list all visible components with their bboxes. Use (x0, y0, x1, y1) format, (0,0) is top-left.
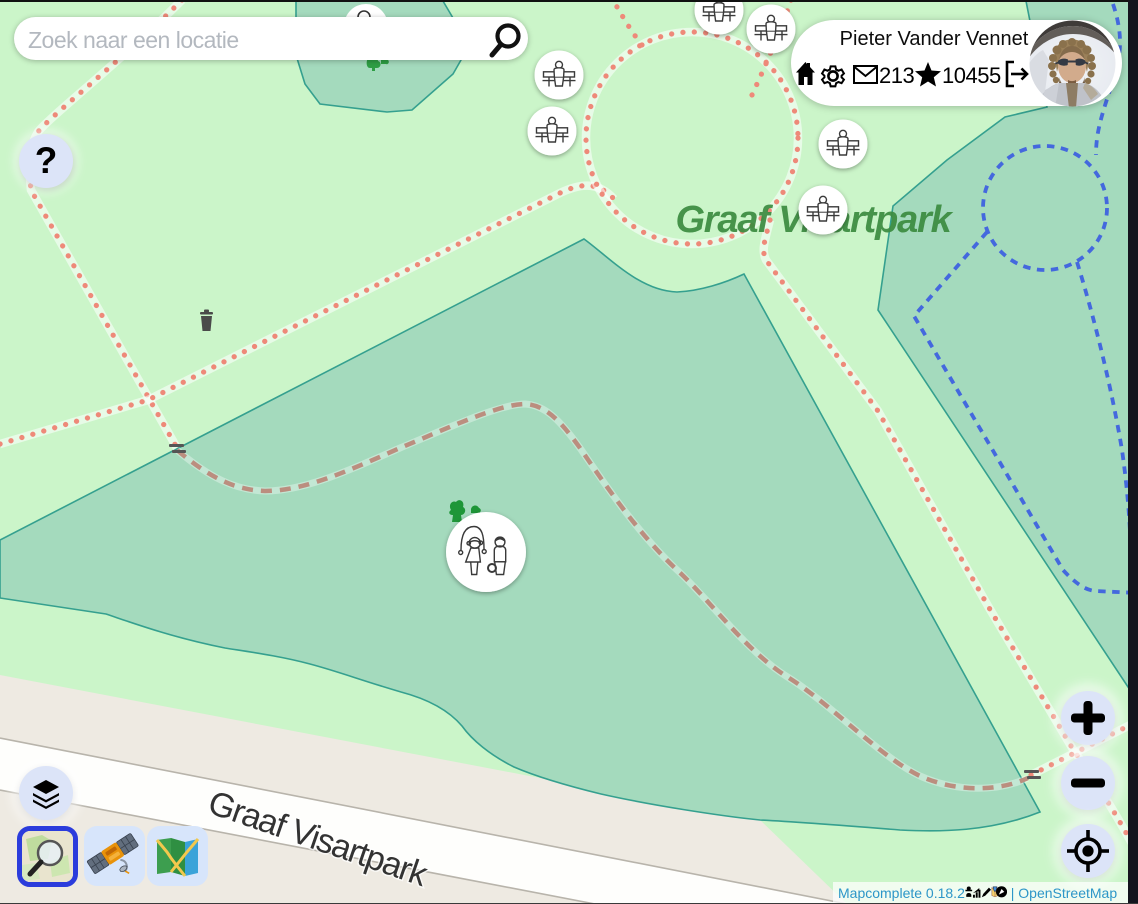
svg-text:10455: 10455 (942, 63, 1001, 88)
svg-text:213: 213 (879, 63, 914, 88)
